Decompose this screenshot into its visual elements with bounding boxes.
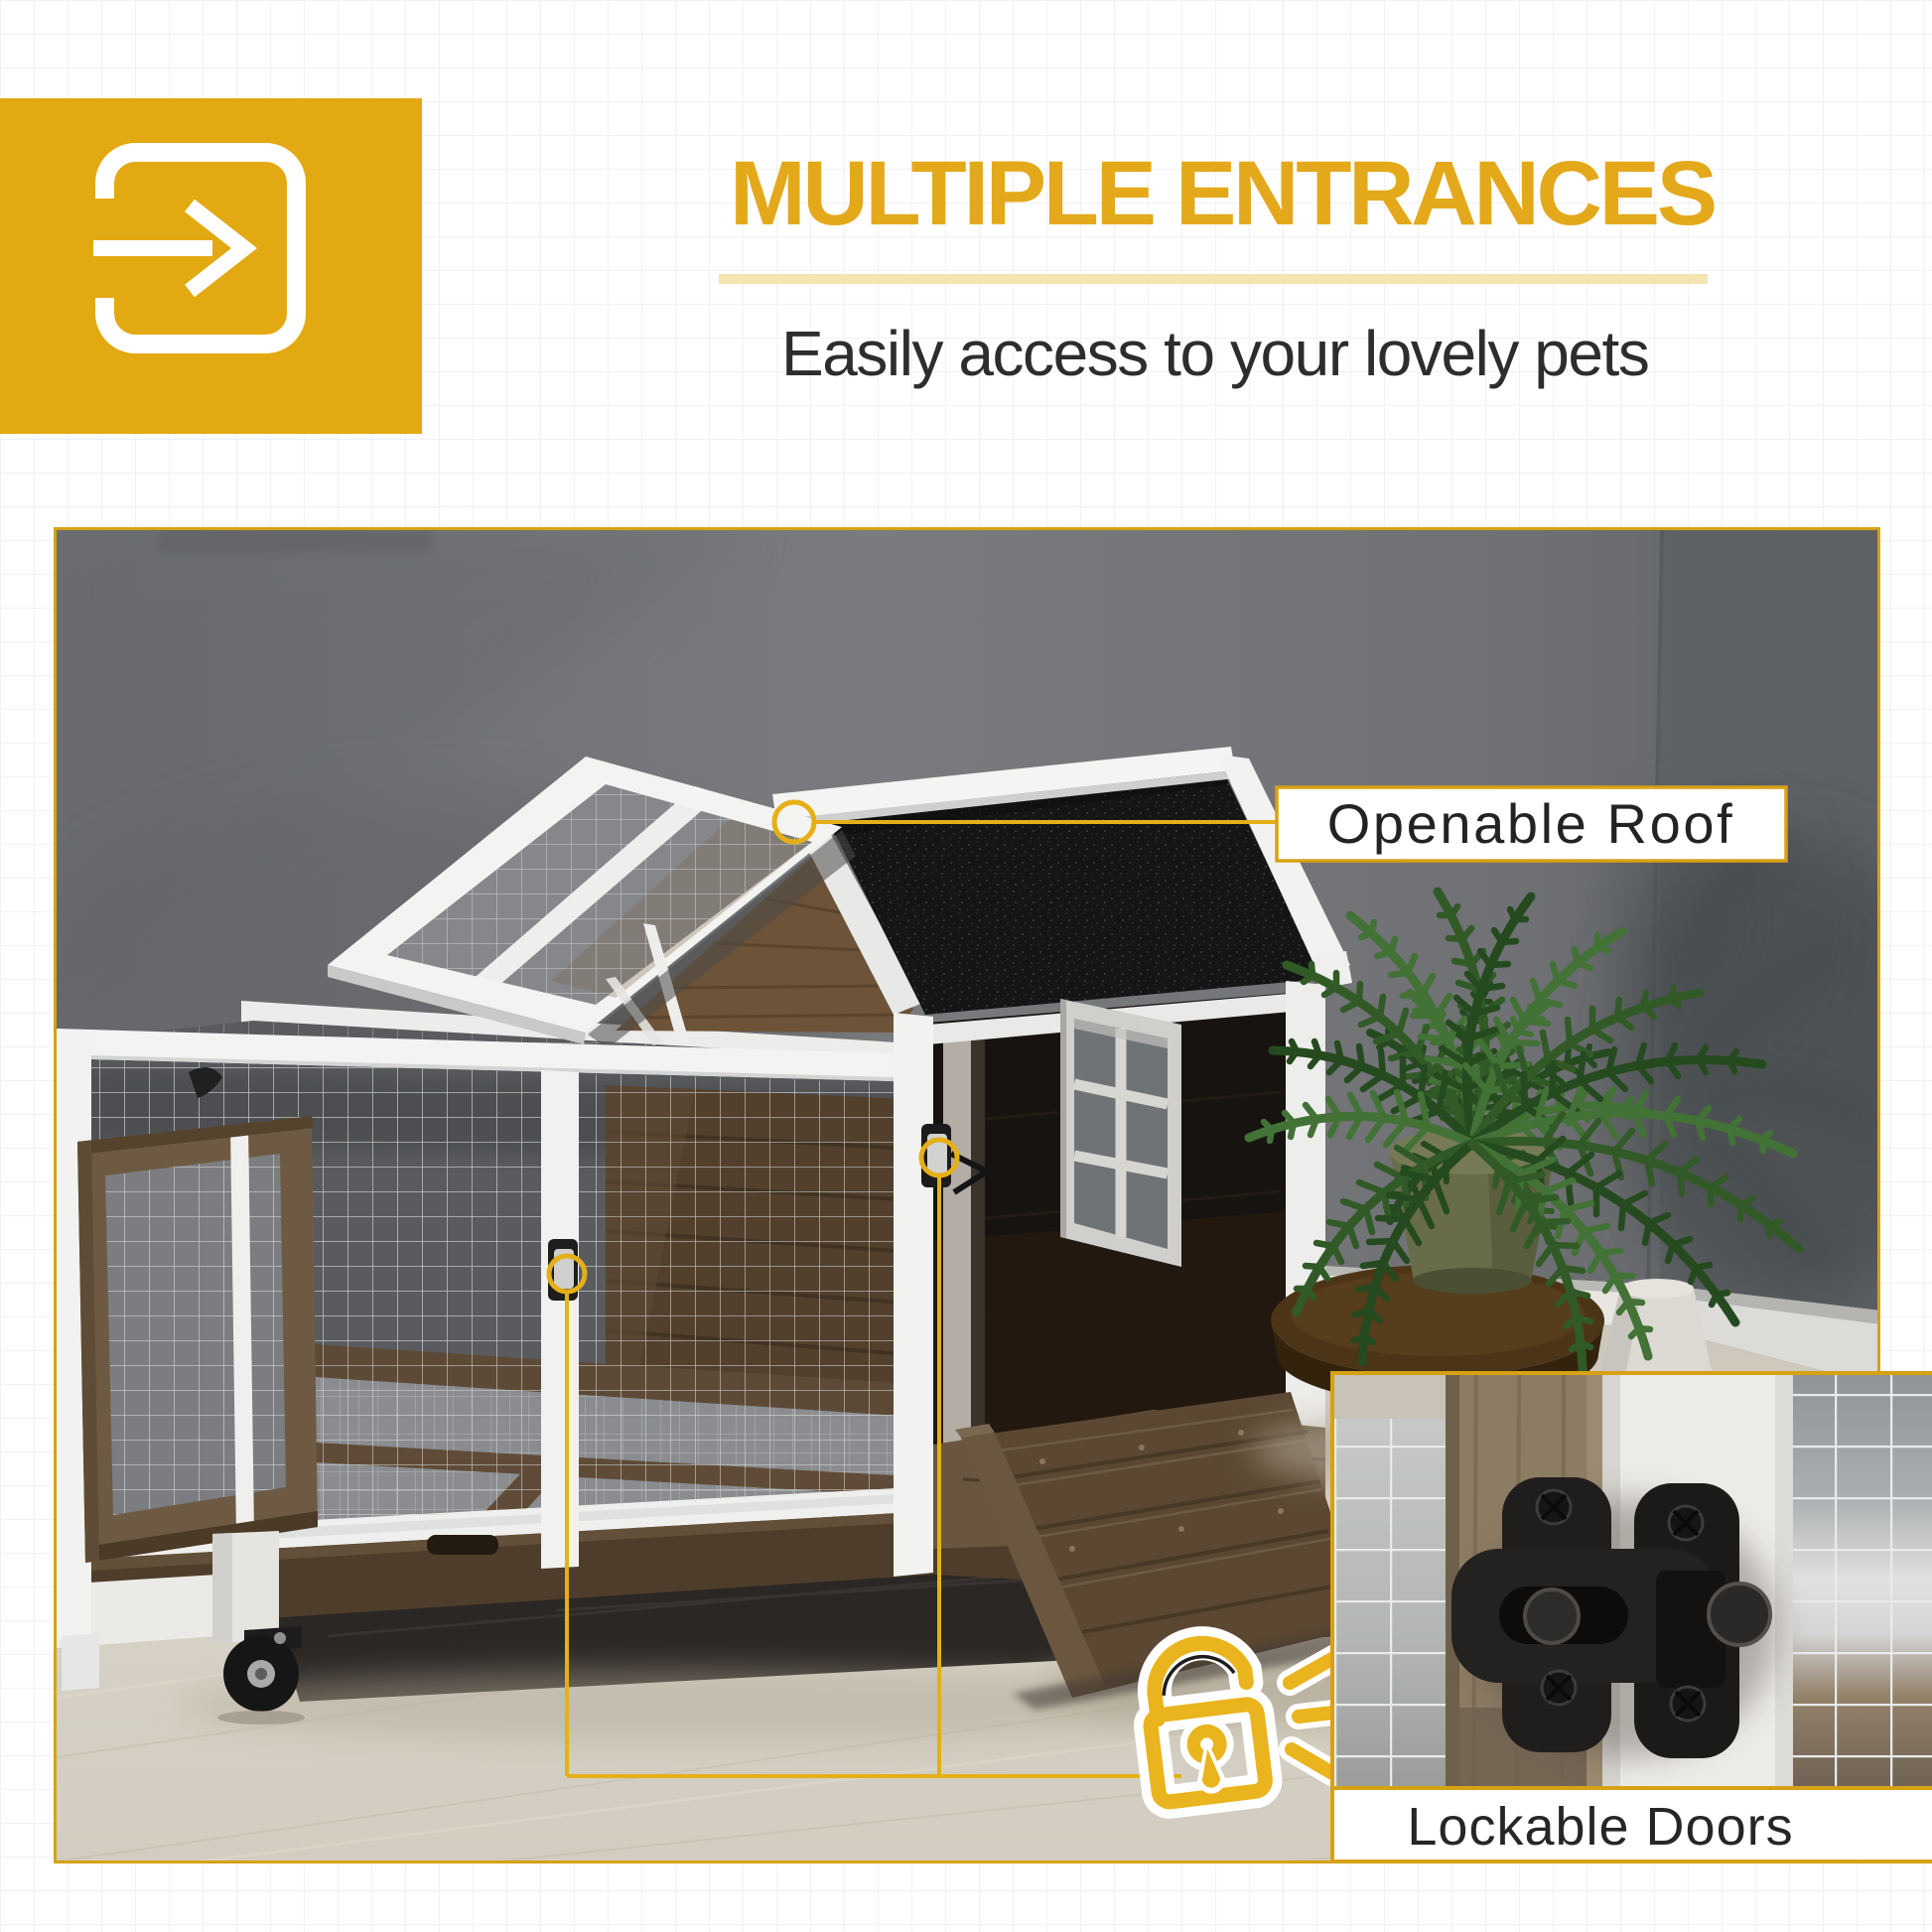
svg-text:Easily access to your lovely p: Easily access to your lovely pets xyxy=(781,318,1648,389)
svg-text:Openable Roof: Openable Roof xyxy=(1327,792,1735,855)
svg-text:Lockable Doors: Lockable Doors xyxy=(1407,1797,1793,1857)
svg-text:MULTIPLE ENTRANCES: MULTIPLE ENTRANCES xyxy=(730,143,1715,244)
